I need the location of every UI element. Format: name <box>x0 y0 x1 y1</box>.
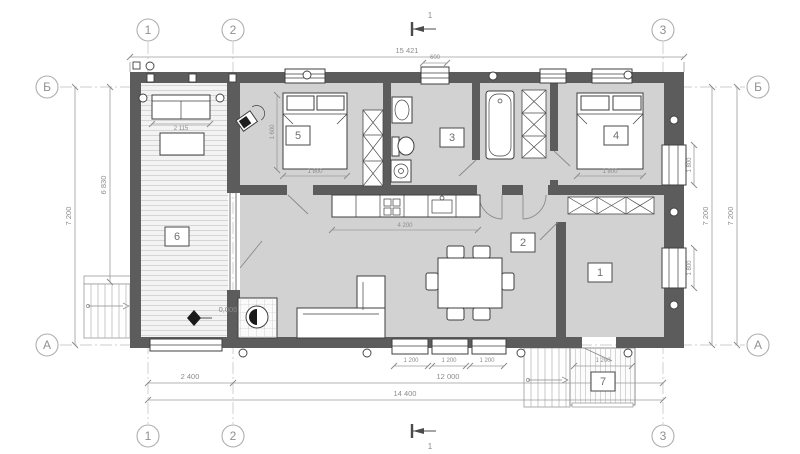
sofa-terrace <box>152 95 210 119</box>
terrace-step <box>150 339 222 351</box>
svg-text:Б: Б <box>43 80 51 94</box>
section-label-bottom: 1 <box>428 442 433 451</box>
svg-text:1: 1 <box>597 267 603 279</box>
dim-bed4: 1 800 <box>602 169 618 175</box>
dim-bottom-2-3: 12 000 <box>437 372 460 381</box>
fireplace <box>238 298 277 338</box>
room-label-7: 7 <box>591 372 615 391</box>
section-marker-top: 1 <box>412 11 436 36</box>
kitchen-counter <box>332 195 480 217</box>
svg-text:1: 1 <box>145 23 152 37</box>
sink-bath <box>392 97 412 123</box>
deck-room7 <box>524 348 635 407</box>
axis-3-bottom: 3 <box>652 425 674 447</box>
room-label-2: 2 <box>511 233 535 252</box>
window-right-room4 <box>662 145 686 185</box>
wardrobe-room1 <box>568 197 654 214</box>
svg-text:2: 2 <box>230 23 237 37</box>
table-terrace <box>160 133 204 155</box>
washing-machine <box>391 160 411 182</box>
dim-win-r1: 1 800 <box>687 157 693 173</box>
elevation-label: 0,000 <box>219 305 238 314</box>
window-right-room1 <box>662 248 686 288</box>
dim-deck: 1 200 <box>595 358 611 364</box>
svg-text:4: 4 <box>613 130 619 142</box>
svg-text:А: А <box>754 338 762 352</box>
svg-text:2: 2 <box>230 429 237 443</box>
window-bottom-2 <box>432 339 468 354</box>
bathtub <box>486 91 514 159</box>
floor-plan-drawing: 0,000 15 421 7 200 6 830 7 200 7 200 2 4… <box>0 0 800 454</box>
room-label-3: 3 <box>440 128 464 147</box>
svg-text:Б: Б <box>754 80 762 94</box>
dim-top-overall: 15 421 <box>396 46 419 55</box>
room-label-6: 6 <box>165 227 189 246</box>
axis-b-right: Б <box>747 76 769 98</box>
svg-text:3: 3 <box>449 132 455 144</box>
axis-b-left: Б <box>36 76 58 98</box>
window-bottom-3 <box>472 339 506 354</box>
room-label-5: 5 <box>286 126 310 145</box>
axis-3-top: 3 <box>652 19 674 41</box>
window-top-hall <box>540 69 566 83</box>
dim-bottom-overall: 14 400 <box>394 389 417 398</box>
dim-win-b1: 1 200 <box>403 358 419 364</box>
dim-window-top: 600 <box>430 55 441 61</box>
axis-a-left: А <box>36 334 58 356</box>
exterior-stair-left <box>84 276 133 338</box>
svg-text:6: 6 <box>174 231 180 243</box>
dim-left-outer: 7 200 <box>64 207 73 226</box>
dim-win-b3: 1 200 <box>479 358 495 364</box>
axis-2-bottom: 2 <box>222 425 244 447</box>
dim-right-a: 7 200 <box>701 207 710 226</box>
room-label-4: 4 <box>604 126 628 145</box>
room-label-1: 1 <box>588 263 612 282</box>
dim-win-b2: 1 200 <box>441 358 457 364</box>
dim-sofa-terrace: 2 115 <box>174 126 189 132</box>
svg-text:А: А <box>43 338 51 352</box>
dim-bed5: 1 800 <box>307 169 323 175</box>
svg-text:7: 7 <box>600 376 606 388</box>
axis-1-top: 1 <box>137 19 159 41</box>
floor-plan-sheet: 0,000 15 421 7 200 6 830 7 200 7 200 2 4… <box>0 0 800 454</box>
svg-text:3: 3 <box>660 23 667 37</box>
dim-room5-depth: 1 600 <box>270 124 276 140</box>
svg-text:5: 5 <box>295 130 301 142</box>
window-bottom-1 <box>392 339 428 354</box>
toilet <box>392 137 414 156</box>
section-marker-bottom: 1 <box>412 424 436 451</box>
window-top-bath <box>421 67 449 84</box>
dim-win-r2: 1 800 <box>687 260 693 276</box>
axis-1-bottom: 1 <box>137 425 159 447</box>
dim-bottom-1-2: 2 400 <box>181 372 200 381</box>
axis-a-right: А <box>747 334 769 356</box>
svg-text:2: 2 <box>520 237 526 249</box>
wardrobe-hall <box>522 90 546 158</box>
wardrobe-room5 <box>363 110 383 186</box>
dim-kitchen: 4 200 <box>397 223 413 229</box>
dim-left-inner: 6 830 <box>99 176 108 195</box>
svg-text:3: 3 <box>660 429 667 443</box>
section-label-top: 1 <box>428 11 433 20</box>
dim-right-b: 7 200 <box>726 207 735 226</box>
svg-text:1: 1 <box>145 429 152 443</box>
axis-2-top: 2 <box>222 19 244 41</box>
